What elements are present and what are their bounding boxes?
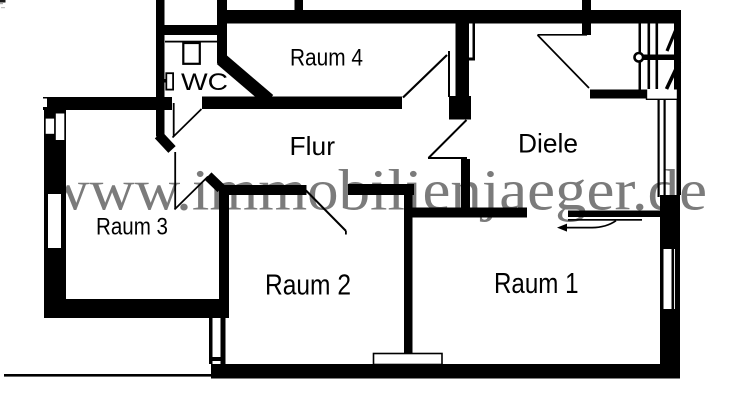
svg-text:WC: WC bbox=[181, 69, 228, 96]
svg-text:Flur: Flur bbox=[290, 131, 336, 161]
svg-text:Raum 2: Raum 2 bbox=[265, 270, 351, 302]
svg-text:Diele: Diele bbox=[518, 129, 578, 159]
svg-text:Raum 1: Raum 1 bbox=[494, 268, 579, 300]
svg-text:Raum 3: Raum 3 bbox=[96, 214, 168, 241]
svg-text:Raum 4: Raum 4 bbox=[290, 45, 363, 72]
